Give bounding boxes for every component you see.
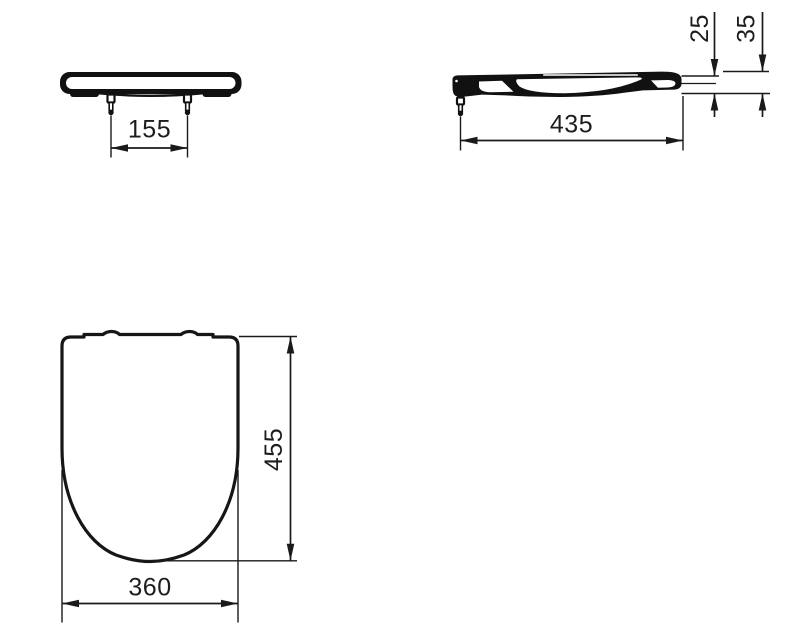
dim-label-overall-height: 35 — [733, 14, 761, 43]
arrowhead-right — [221, 600, 238, 608]
hinge-pin-tip — [185, 110, 190, 115]
dim-label-rear-height: 25 — [686, 14, 714, 43]
hinge-pin-side — [457, 98, 464, 117]
arrowhead-left — [62, 600, 79, 608]
side-view-dim-435: 435 — [461, 96, 684, 151]
arrowhead-up — [711, 94, 719, 111]
seat-front-bumper-right — [203, 91, 232, 98]
hinge-pin-right — [184, 95, 191, 116]
seat-plan-outline — [62, 332, 238, 562]
hinge-pin-collar — [108, 95, 115, 103]
seat-front-bumper-left — [70, 91, 99, 98]
hinge-pin-tip — [108, 110, 113, 115]
hinge-pin-collar — [457, 98, 464, 105]
seat-side-top-groove — [543, 74, 638, 76]
hinge-pin-stem — [109, 103, 113, 111]
arrowhead-right — [171, 144, 188, 151]
hinge-pin-left — [108, 95, 115, 116]
hinge-pin-stem — [459, 105, 463, 112]
arrowhead-left — [461, 137, 478, 144]
dim-35: 35 — [733, 12, 767, 117]
arrowhead-down — [287, 544, 295, 561]
toilet-seat-technical-drawing: 155 435 25 — [0, 0, 789, 630]
dim-25: 25 — [686, 12, 718, 117]
side-view-dim-25-35: 25 35 — [682, 12, 771, 117]
side-view — [453, 72, 682, 117]
front-view — [60, 72, 242, 115]
seat-front-slot — [66, 77, 236, 89]
arrowhead-left — [111, 144, 128, 151]
hinge-pin-tip — [458, 111, 463, 116]
front-view-dim-155: 155 — [111, 116, 188, 158]
arrowhead-right — [666, 137, 683, 144]
arrowhead-up — [759, 94, 767, 111]
dim-label-seat-width: 360 — [128, 574, 171, 602]
plan-view — [62, 332, 238, 562]
hinge-pin-stem — [186, 103, 190, 111]
technical-drawing-page: 155 435 25 — [0, 0, 789, 630]
dim-label-seat-depth: 455 — [260, 428, 288, 471]
dim-label-hinge-spacing: 155 — [128, 116, 171, 144]
dim-label-seat-length: 435 — [550, 111, 593, 139]
hinge-pin-collar — [184, 95, 191, 103]
arrowhead-down — [759, 55, 767, 72]
arrowhead-down — [711, 59, 719, 76]
arrowhead-up — [287, 337, 295, 354]
seat-side-hinge-dot — [455, 80, 458, 83]
